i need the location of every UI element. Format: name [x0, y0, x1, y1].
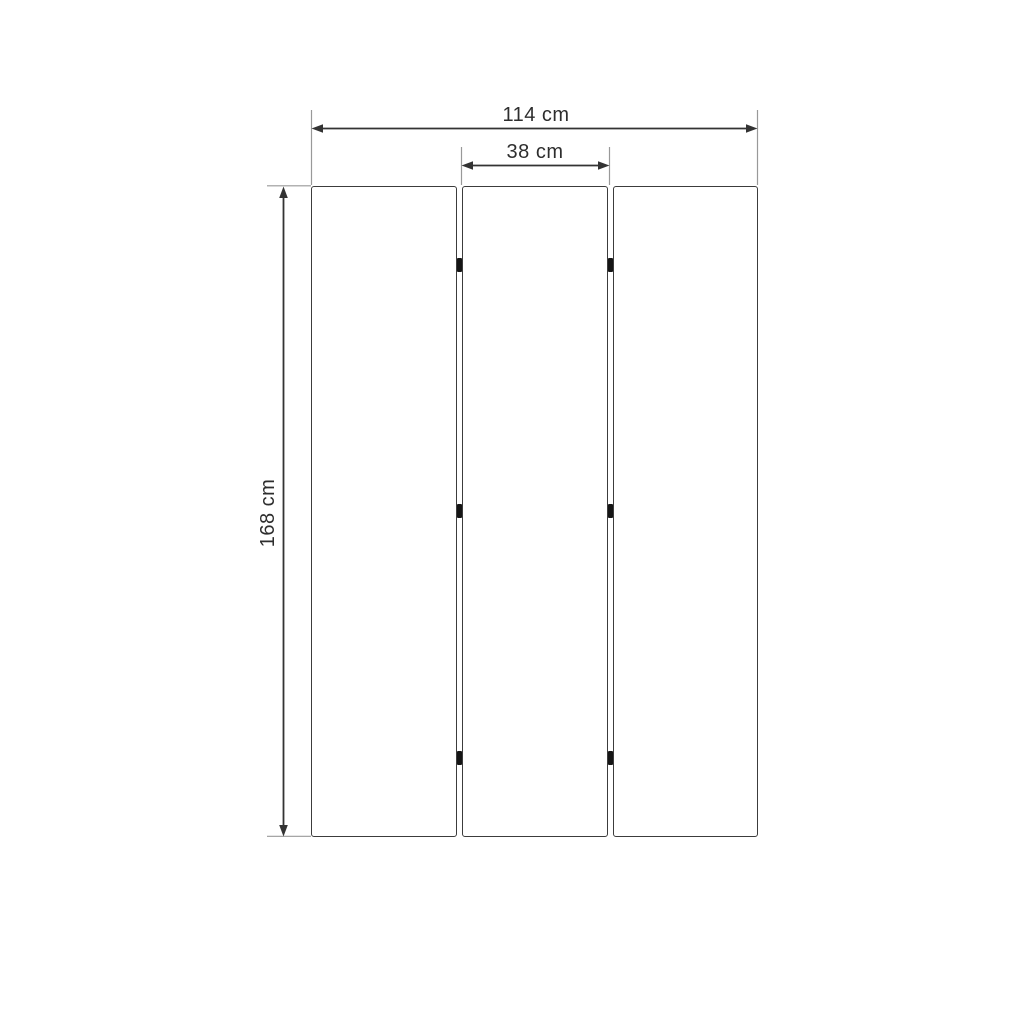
hinge-left-middle	[457, 504, 462, 518]
hinge-right-middle	[608, 504, 613, 518]
hinge-right-top	[608, 258, 613, 272]
panel-center	[462, 186, 608, 837]
hinge-left-top	[457, 258, 462, 272]
total-width-label: 114 cm	[436, 105, 636, 125]
arrowhead-up-icon	[279, 187, 288, 199]
hinge-right-bottom	[608, 751, 613, 765]
panel-right	[613, 186, 758, 837]
arrowhead-left-icon	[312, 124, 324, 133]
arrowhead-right-icon	[598, 161, 610, 170]
arrowhead-left-icon	[462, 161, 474, 170]
arrowhead-right-icon	[746, 124, 758, 133]
hinge-left-bottom	[457, 751, 462, 765]
arrowhead-down-icon	[279, 825, 288, 837]
panel-width-label: 38 cm	[455, 142, 615, 162]
panel-left	[311, 186, 457, 837]
dimension-diagram: 114 cm 38 cm 168 cm	[0, 0, 1024, 1024]
height-label: 168 cm	[258, 453, 278, 573]
